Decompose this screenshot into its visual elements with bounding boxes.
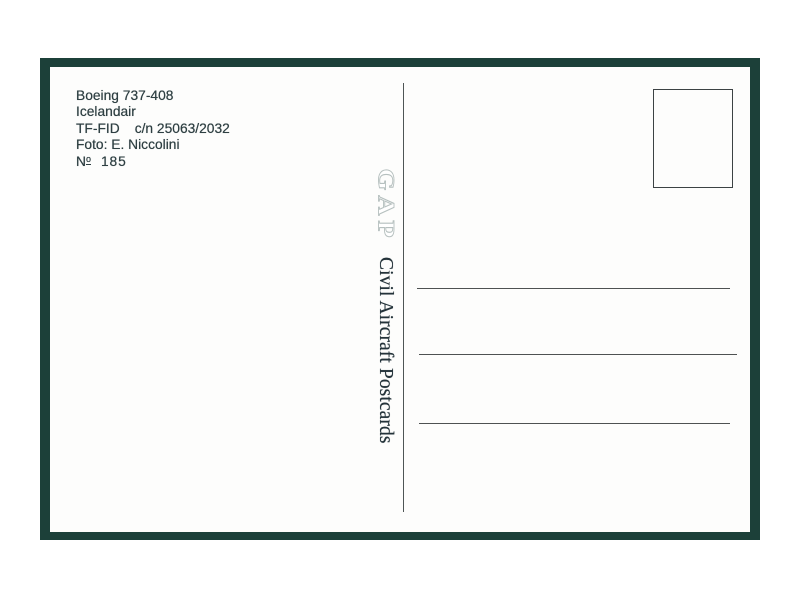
svg-text:GAP: GAP xyxy=(374,169,399,243)
